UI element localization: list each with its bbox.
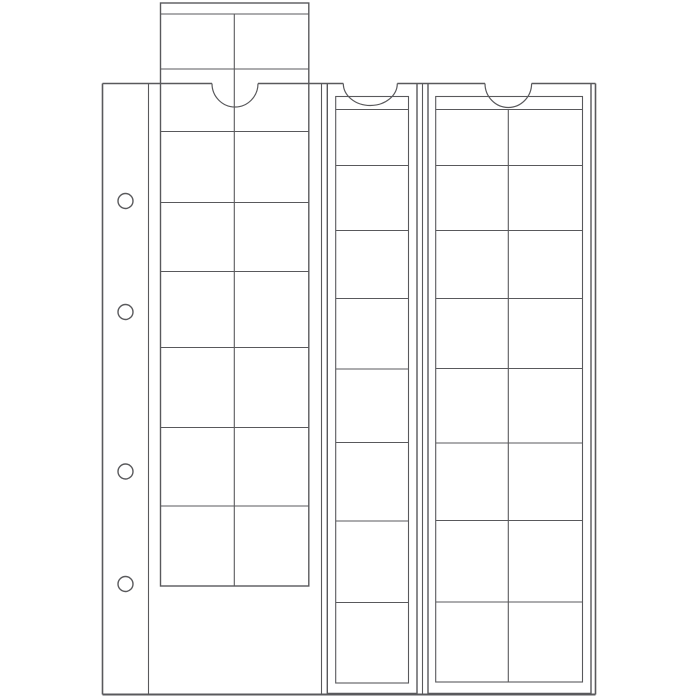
illustration-canvas <box>0 0 700 700</box>
binder-hole <box>118 194 133 209</box>
product-illustration <box>0 0 700 700</box>
binder-hole <box>118 464 133 479</box>
binder-hole <box>118 305 133 320</box>
binder-hole <box>118 577 133 592</box>
